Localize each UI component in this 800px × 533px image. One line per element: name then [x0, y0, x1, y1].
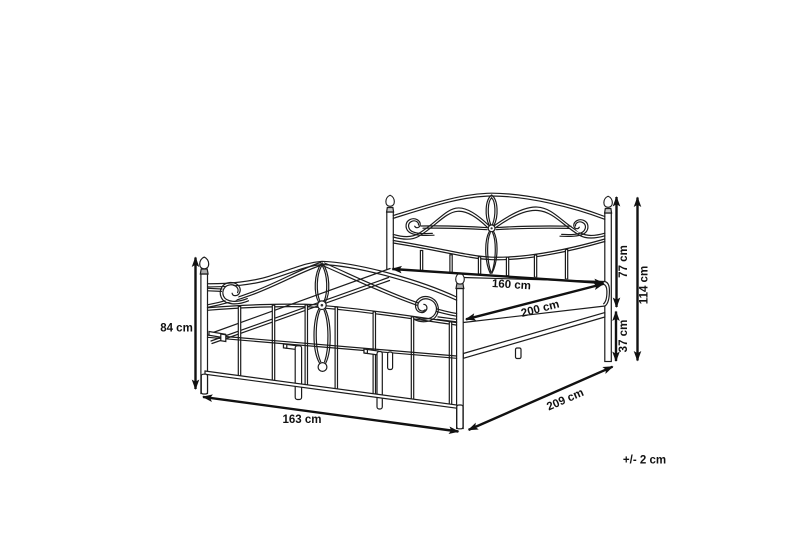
svg-text:84 cm: 84 cm [160, 322, 193, 334]
svg-text:+/- 2 cm: +/- 2 cm [623, 455, 666, 467]
svg-text:209 cm: 209 cm [545, 387, 586, 414]
svg-text:77 cm: 77 cm [618, 245, 630, 278]
svg-text:160 cm: 160 cm [492, 278, 532, 292]
svg-text:37 cm: 37 cm [618, 320, 630, 353]
svg-text:163 cm: 163 cm [282, 414, 321, 426]
svg-text:114 cm: 114 cm [639, 266, 651, 304]
